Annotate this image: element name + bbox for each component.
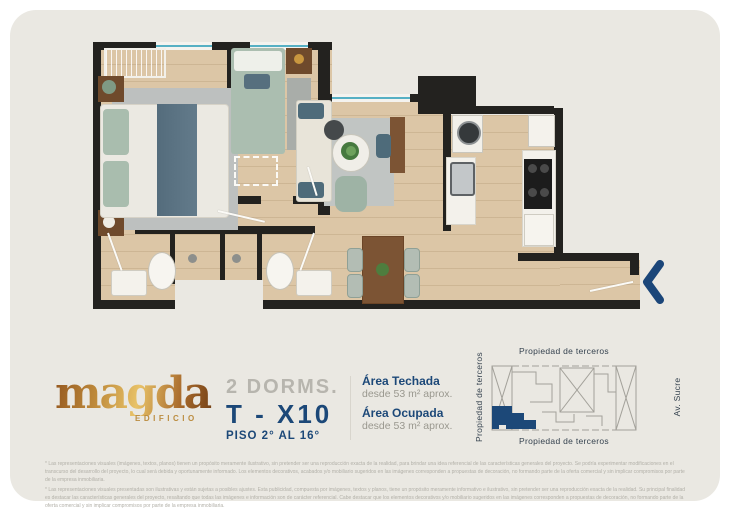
decor-icon bbox=[294, 54, 304, 64]
minimap-label-right: Av. Sucre bbox=[672, 342, 682, 452]
logo-subtitle: EDIFICIO bbox=[135, 414, 198, 423]
burner-icon bbox=[528, 164, 537, 173]
brand-logo: magda EDIFICIO bbox=[55, 372, 215, 432]
wall-hall-top bbox=[518, 253, 639, 261]
unit-code: T - X10 bbox=[226, 399, 339, 430]
kitchen-sink bbox=[450, 162, 475, 196]
minimap-label-bottom: Propiedad de terceros bbox=[490, 436, 638, 446]
unit-location-marker bbox=[492, 406, 536, 429]
oven bbox=[524, 214, 554, 246]
window-living-room bbox=[332, 94, 410, 102]
dining-chair bbox=[404, 274, 420, 298]
accent-chair bbox=[335, 176, 367, 212]
unit-info: 2 DORMS. T - X10 PISO 2° AL 16° bbox=[226, 376, 339, 442]
flyer-card: magda EDIFICIO 2 DORMS. T - X10 PISO 2° … bbox=[10, 10, 720, 501]
floor-plan bbox=[10, 10, 720, 350]
chevron-left-icon[interactable] bbox=[642, 260, 664, 304]
area-techada-label: Área Techada bbox=[362, 374, 452, 388]
area-techada-value: desde 53 m² aprox. bbox=[362, 388, 452, 400]
minimap-label-left: Propiedad de terceros bbox=[474, 342, 484, 452]
disclaimer-paragraph-2: * Las representaciones visuales presenta… bbox=[45, 486, 690, 510]
pillow bbox=[103, 109, 129, 155]
accent-pillow bbox=[244, 74, 270, 89]
legal-disclaimer: * Las representaciones visuales (imágene… bbox=[45, 460, 690, 511]
sofa-pillow bbox=[298, 103, 324, 119]
dining-chair bbox=[404, 248, 420, 272]
burner-icon bbox=[528, 188, 537, 197]
fridge bbox=[528, 115, 555, 147]
bed-throw bbox=[157, 104, 197, 216]
building-outline bbox=[490, 358, 638, 436]
pillow bbox=[234, 51, 282, 71]
structural-block bbox=[418, 76, 476, 114]
desk-chair bbox=[376, 134, 391, 158]
bathroom-2-vanity bbox=[296, 270, 332, 296]
dashed-marker bbox=[234, 156, 278, 186]
pillow bbox=[103, 161, 129, 207]
footer-divider bbox=[350, 376, 351, 440]
burner-icon bbox=[540, 164, 549, 173]
exterior-notch bbox=[175, 280, 263, 330]
desk bbox=[390, 117, 405, 173]
bathroom-1-vanity bbox=[111, 270, 147, 296]
dining-chair bbox=[347, 274, 363, 298]
shower-drain-icon bbox=[232, 254, 241, 263]
wall-shower-partition-b bbox=[257, 234, 262, 284]
location-minimap: Propiedad de terceros Propiedad de terce… bbox=[460, 340, 675, 450]
logo-wordmark: magda bbox=[55, 372, 215, 416]
plant-icon bbox=[102, 80, 116, 94]
bedrooms-label: 2 DORMS. bbox=[226, 376, 339, 399]
area-ocupada-value: desde 53 m² aprox. bbox=[362, 420, 452, 432]
area-ocupada-label: Área Ocupada bbox=[362, 406, 452, 420]
plant-icon bbox=[346, 146, 356, 156]
toilet bbox=[266, 252, 294, 290]
disclaimer-paragraph-1: * Las representaciones visuales (imágene… bbox=[45, 460, 690, 484]
flyer-page: magda EDIFICIO 2 DORMS. T - X10 PISO 2° … bbox=[0, 0, 730, 511]
shower-drain-icon bbox=[188, 254, 197, 263]
washer-drum-icon bbox=[457, 121, 481, 145]
toilet bbox=[148, 252, 176, 290]
centerpiece-icon bbox=[376, 263, 389, 276]
burner-icon bbox=[540, 188, 549, 197]
sofa-pillow bbox=[298, 182, 324, 198]
minimap-label-top: Propiedad de terceros bbox=[490, 346, 638, 356]
closet bbox=[104, 48, 166, 78]
wall-shower-partition-mid bbox=[220, 234, 225, 284]
dining-chair bbox=[347, 248, 363, 272]
areas-info: Área Techada desde 53 m² aprox. Área Ocu… bbox=[362, 374, 452, 432]
floors-label: PISO 2° AL 16° bbox=[226, 430, 339, 442]
